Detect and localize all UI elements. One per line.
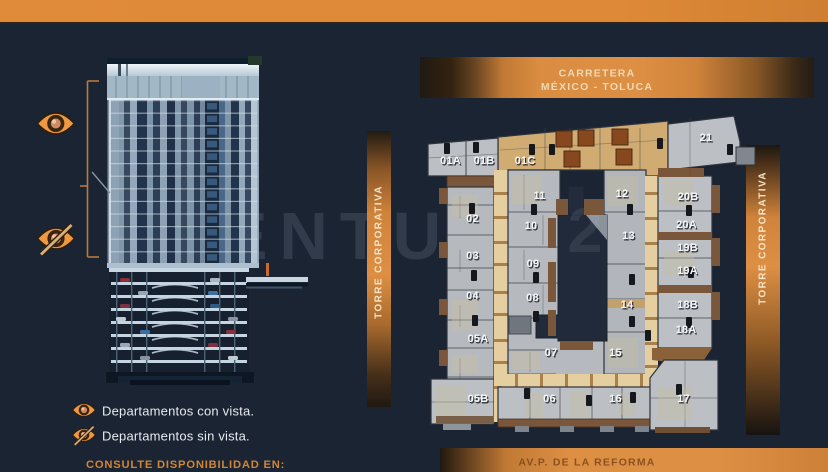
svg-text:03: 03 — [466, 250, 479, 262]
svg-text:17: 17 — [677, 393, 690, 405]
svg-text:19A: 19A — [677, 265, 698, 277]
svg-text:16: 16 — [609, 393, 622, 405]
svg-text:CONSULTE DISPONIBILIDAD EN:: CONSULTE DISPONIBILIDAD EN: — [86, 459, 285, 471]
svg-text:CARRETERA: CARRETERA — [559, 68, 636, 80]
svg-text:09: 09 — [527, 258, 540, 270]
svg-text:MÉXICO - TOLUCA: MÉXICO - TOLUCA — [541, 80, 653, 93]
svg-text:14: 14 — [621, 299, 634, 311]
svg-text:02: 02 — [466, 213, 479, 225]
svg-text:AV.P. DE LA REFORMA: AV.P. DE LA REFORMA — [518, 457, 655, 469]
svg-text:13: 13 — [622, 230, 635, 242]
svg-text:20A: 20A — [676, 219, 697, 231]
svg-text:Departamentos sin vista.: Departamentos sin vista. — [102, 429, 250, 444]
svg-text:11: 11 — [533, 190, 545, 202]
svg-text:18A: 18A — [676, 324, 697, 336]
svg-text:Departamentos con vista.: Departamentos con vista. — [102, 404, 254, 419]
svg-text:15: 15 — [609, 347, 622, 359]
svg-text:07: 07 — [545, 347, 558, 359]
svg-text:TORRE CORPORATIVA: TORRE CORPORATIVA — [758, 171, 769, 305]
svg-text:01C: 01C — [515, 155, 536, 167]
svg-text:01B: 01B — [474, 155, 495, 167]
svg-text:01A: 01A — [440, 155, 461, 167]
svg-text:06: 06 — [543, 393, 556, 405]
svg-text:04: 04 — [466, 290, 479, 302]
svg-text:10: 10 — [525, 220, 538, 232]
svg-text:19B: 19B — [677, 242, 698, 254]
svg-text:05B: 05B — [468, 393, 489, 405]
svg-text:08: 08 — [526, 292, 539, 304]
svg-text:05A: 05A — [468, 333, 489, 345]
svg-text:20B: 20B — [678, 191, 699, 203]
svg-text:21: 21 — [700, 132, 713, 144]
svg-text:TORRE CORPORATIVA: TORRE CORPORATIVA — [374, 185, 385, 319]
svg-text:12: 12 — [616, 188, 629, 200]
svg-text:18B: 18B — [677, 299, 698, 311]
